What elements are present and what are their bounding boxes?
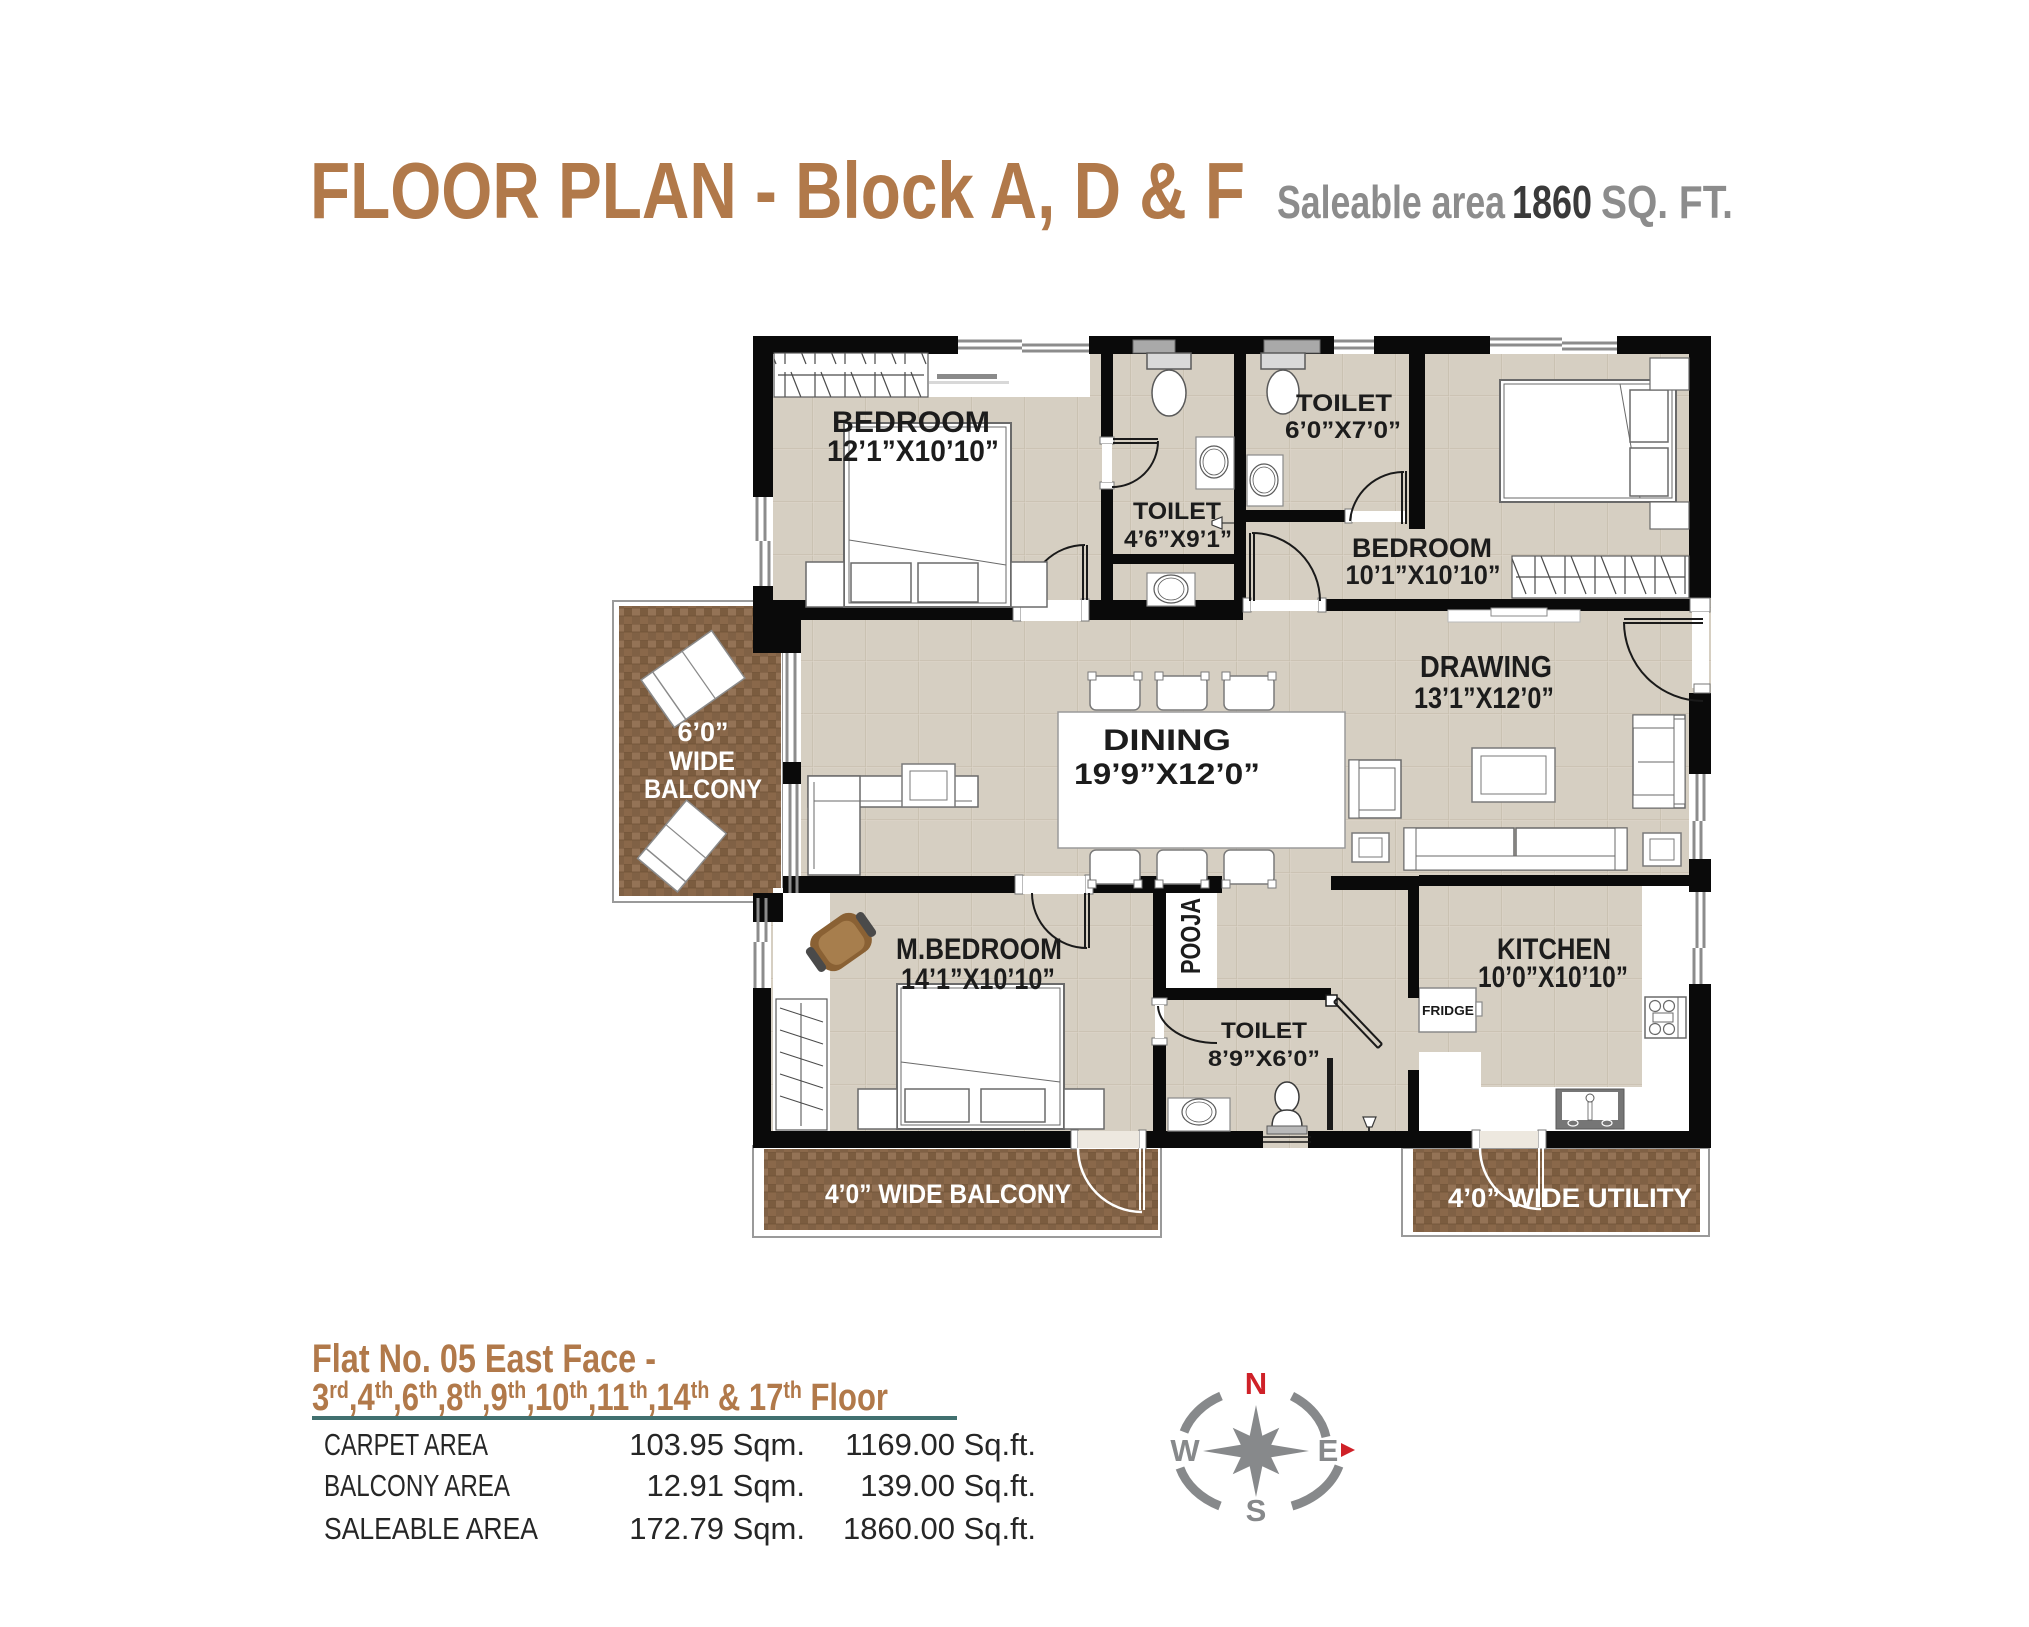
svg-text:DRAWING: DRAWING — [1420, 649, 1552, 684]
svg-text:S: S — [1246, 1493, 1267, 1528]
svg-text:6’0”X7’0”: 6’0”X7’0” — [1285, 417, 1401, 444]
svg-text:12’1”X10’10”: 12’1”X10’10” — [827, 435, 999, 468]
svg-text:DINING: DINING — [1103, 724, 1231, 757]
svg-text:19’9”X12’0”: 19’9”X12’0” — [1074, 758, 1260, 791]
svg-text:4’6”X9’1”: 4’6”X9’1” — [1124, 526, 1232, 553]
svg-text:POOJA: POOJA — [1175, 898, 1206, 974]
svg-text:N: N — [1245, 1366, 1267, 1401]
svg-text:FRIDGE: FRIDGE — [1422, 1003, 1474, 1018]
svg-text:W: W — [1170, 1433, 1200, 1468]
svg-text:13’1”X12’0”: 13’1”X12’0” — [1414, 682, 1554, 715]
svg-text:172.79 Sqm.: 172.79 Sqm. — [629, 1511, 805, 1546]
svg-text:E: E — [1318, 1433, 1339, 1468]
svg-text:8’9”X6’0”: 8’9”X6’0” — [1208, 1046, 1320, 1071]
svg-text:BEDROOM: BEDROOM — [1352, 533, 1492, 563]
svg-text:BALCONY: BALCONY — [644, 774, 762, 804]
svg-text:12.91 Sqm.: 12.91 Sqm. — [646, 1468, 805, 1503]
svg-text:BALCONY AREA: BALCONY AREA — [324, 1468, 510, 1503]
svg-text:10’1”X10’10”: 10’1”X10’10” — [1346, 560, 1501, 590]
svg-text:Saleable area: Saleable area — [1277, 176, 1505, 228]
svg-text:6’0”: 6’0” — [677, 717, 728, 747]
svg-text:4’0” WIDE BALCONY: 4’0” WIDE BALCONY — [825, 1179, 1071, 1209]
svg-text:SALEABLE AREA: SALEABLE AREA — [324, 1511, 538, 1546]
svg-text:CARPET AREA: CARPET AREA — [324, 1427, 488, 1462]
svg-text:SQ. FT.: SQ. FT. — [1601, 176, 1733, 228]
svg-text:WIDE: WIDE — [669, 746, 735, 776]
svg-text:FLOOR PLAN - Block A, D & F: FLOOR PLAN - Block A, D & F — [310, 146, 1245, 235]
svg-text:Flat No. 05 East Face -: Flat No. 05 East Face - — [312, 1337, 656, 1381]
svg-text:1860: 1860 — [1512, 176, 1592, 228]
svg-text:M.BEDROOM: M.BEDROOM — [896, 933, 1062, 966]
svg-text:139.00 Sq.ft.: 139.00 Sq.ft. — [860, 1468, 1036, 1503]
svg-text:TOILET: TOILET — [1221, 1018, 1308, 1043]
svg-text:1860.00 Sq.ft.: 1860.00 Sq.ft. — [843, 1511, 1036, 1546]
svg-text:103.95 Sqm.: 103.95 Sqm. — [629, 1427, 805, 1462]
svg-text:1169.00 Sq.ft.: 1169.00 Sq.ft. — [845, 1427, 1036, 1462]
svg-text:3rd,4th,6th,8th,9th,10th,11th,: 3rd,4th,6th,8th,9th,10th,11th,14th & 17t… — [312, 1377, 888, 1419]
svg-text:10’0”X10’10”: 10’0”X10’10” — [1478, 961, 1628, 994]
svg-text:14’1”X10’10”: 14’1”X10’10” — [901, 963, 1055, 996]
svg-text:TOILET: TOILET — [1296, 390, 1392, 417]
svg-text:TOILET: TOILET — [1133, 498, 1221, 525]
svg-text:4’0” WIDE UTILITY: 4’0” WIDE UTILITY — [1448, 1183, 1692, 1213]
